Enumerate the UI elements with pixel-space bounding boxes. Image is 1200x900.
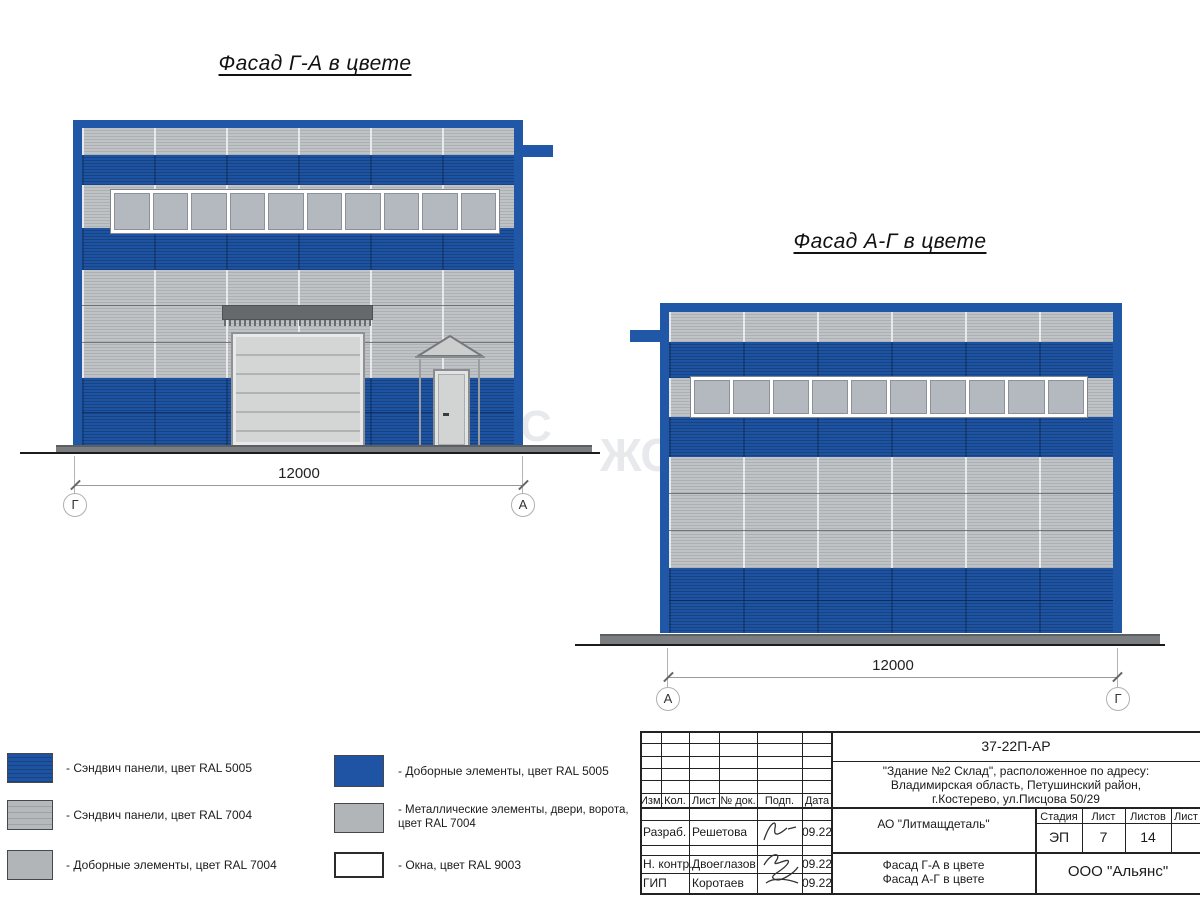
legend-swatch-sandwich-ral5005 bbox=[7, 753, 53, 783]
dimension-value: 12000 bbox=[259, 465, 339, 482]
facade-2-panels bbox=[669, 312, 1113, 633]
panel-joint bbox=[669, 600, 1113, 601]
sectional-gate bbox=[231, 332, 365, 447]
gate-lintel-teeth bbox=[224, 320, 371, 326]
facade-2-ground-line bbox=[575, 644, 1165, 646]
window-pane bbox=[733, 380, 769, 414]
tb-name: Решетова bbox=[692, 825, 756, 839]
window-pane bbox=[422, 193, 458, 230]
axis-marker-a: А bbox=[656, 687, 680, 711]
tb-grid-line bbox=[640, 793, 832, 794]
tb-date: 09.22 bbox=[802, 825, 832, 839]
window-pane bbox=[345, 193, 381, 230]
tb-col-podp: Подп. bbox=[757, 795, 802, 807]
tb-divider bbox=[640, 807, 1200, 809]
tb-role: ГИП bbox=[643, 876, 689, 890]
sheet-title-line: Фасад А-Г в цвете bbox=[832, 872, 1035, 886]
window-pane bbox=[114, 193, 150, 230]
window-pane bbox=[773, 380, 809, 414]
panel-band-blue bbox=[669, 568, 1113, 633]
tb-date: 09.22 bbox=[802, 857, 832, 871]
document-code: 37-22П-АР bbox=[832, 738, 1200, 754]
facade-1-ground-line bbox=[20, 452, 600, 454]
design-company: ООО "Альянс" bbox=[1036, 863, 1200, 880]
window-pane bbox=[694, 380, 730, 414]
window-pane bbox=[268, 193, 304, 230]
dimension-line bbox=[75, 485, 523, 486]
window-pane bbox=[930, 380, 966, 414]
facade-2-building bbox=[660, 303, 1122, 633]
title-block: 37-22П-АР "Здание №2 Склад", расположенн… bbox=[640, 731, 1200, 895]
window-pane bbox=[1048, 380, 1084, 414]
customer-organization: АО "Литмащдеталь" bbox=[832, 817, 1035, 831]
window-pane bbox=[191, 193, 227, 230]
project-address-line: Владимирская область, Петушинский район, bbox=[832, 778, 1200, 792]
tb-col-doc: № док. bbox=[719, 795, 757, 807]
panel-band-blue bbox=[82, 155, 514, 185]
tb-role: Разраб. bbox=[643, 825, 689, 839]
tb-sheet-value: 7 bbox=[1082, 829, 1125, 845]
canopy-post bbox=[478, 359, 480, 447]
dimension-value: 12000 bbox=[853, 657, 933, 674]
tb-border bbox=[640, 893, 1200, 895]
door-leaf bbox=[438, 374, 465, 445]
tb-sheets-label: Листов bbox=[1125, 811, 1171, 823]
project-address-line: г.Костерево, ул.Писцова 50/29 bbox=[832, 792, 1200, 806]
tb-divider bbox=[831, 852, 1200, 854]
legend-swatch-metal-ral7004 bbox=[334, 803, 384, 833]
tb-grid-line bbox=[640, 780, 832, 781]
legend-label: цвет RAL 7004 bbox=[398, 818, 476, 830]
extension-line bbox=[667, 648, 668, 688]
facade-2-title: Фасад А-Г в цвете bbox=[740, 230, 1040, 254]
signature bbox=[758, 849, 804, 893]
panel-joint bbox=[669, 493, 1113, 494]
extension-line bbox=[522, 456, 523, 496]
tb-col-kol: Кол. bbox=[661, 795, 689, 807]
gate-lintel bbox=[222, 305, 373, 320]
drawing-sheet: Фасад Г-А в цвете bbox=[0, 0, 1200, 900]
legend-label: - Металлические элементы, двери, ворота, bbox=[398, 804, 629, 816]
legend-swatch-sandwich-ral7004 bbox=[7, 800, 53, 830]
door-canopy-gable bbox=[415, 333, 485, 359]
tb-grid-line bbox=[831, 761, 1200, 762]
tb-sheet-label: Лист bbox=[1082, 811, 1125, 823]
panel-band-gray bbox=[669, 457, 1113, 568]
tb-next-sheet-label: Лист bbox=[1174, 811, 1200, 823]
axis-marker-g: Г bbox=[63, 493, 87, 517]
dimension-line bbox=[668, 677, 1118, 678]
signature bbox=[760, 816, 802, 844]
tb-grid-line bbox=[1171, 808, 1172, 853]
window-pane bbox=[153, 193, 189, 230]
window-pane bbox=[384, 193, 420, 230]
tb-name: Двоеглазов bbox=[692, 857, 756, 871]
tb-date: 09.22 bbox=[802, 876, 832, 890]
tb-grid-line bbox=[1035, 823, 1200, 824]
door-handle bbox=[443, 413, 449, 416]
window-pane bbox=[969, 380, 1005, 414]
legend-label: - Доборные элементы, цвет RAL 5005 bbox=[398, 764, 609, 778]
legend-swatch-trim-ral7004 bbox=[7, 850, 53, 880]
facade-2-window-strip bbox=[690, 376, 1088, 418]
facade-1-roof-outlet bbox=[523, 145, 553, 157]
axis-marker-g: Г bbox=[1106, 687, 1130, 711]
tb-sheets-value: 14 bbox=[1125, 829, 1171, 845]
tb-stage-value: ЭП bbox=[1036, 829, 1082, 845]
canopy-post bbox=[419, 359, 421, 447]
panel-band-gray bbox=[669, 312, 1113, 342]
tb-border bbox=[640, 731, 1200, 733]
legend-swatch-trim-ral5005 bbox=[334, 755, 384, 787]
facade-2-roof-outlet bbox=[630, 330, 662, 342]
tb-grid-line bbox=[640, 820, 832, 821]
legend-label: - Сэндвич панели, цвет RAL 7004 bbox=[66, 808, 252, 822]
legend-label: - Доборные элементы, цвет RAL 7004 bbox=[66, 858, 277, 872]
watermark: С bbox=[520, 402, 552, 452]
project-address-line: "Здание №2 Склад", расположенное по адре… bbox=[832, 764, 1200, 778]
tb-stage-label: Стадия bbox=[1036, 811, 1082, 823]
window-pane bbox=[812, 380, 848, 414]
window-pane bbox=[851, 380, 887, 414]
facade-1-title: Фасад Г-А в цвете bbox=[165, 52, 465, 76]
legend-swatch-windows-ral9003 bbox=[334, 852, 384, 878]
panel-band-blue bbox=[669, 417, 1113, 457]
panel-band-blue bbox=[82, 228, 514, 270]
legend-label: - Сэндвич панели, цвет RAL 5005 bbox=[66, 761, 252, 775]
gate-sections bbox=[236, 337, 360, 442]
tb-col-izm: Изм. bbox=[640, 795, 661, 807]
axis-marker-a: А bbox=[511, 493, 535, 517]
panel-joint bbox=[669, 530, 1113, 531]
facade-1-window-strip bbox=[110, 189, 500, 234]
sheet-title-line: Фасад Г-А в цвете bbox=[832, 858, 1035, 872]
window-pane bbox=[230, 193, 266, 230]
tb-col-data: Дата bbox=[802, 795, 832, 807]
window-pane bbox=[890, 380, 926, 414]
tb-grid-line bbox=[640, 768, 832, 769]
tb-grid-line bbox=[640, 743, 832, 744]
extension-line bbox=[1117, 648, 1118, 688]
tb-grid-line bbox=[640, 756, 832, 757]
extension-line bbox=[74, 456, 75, 496]
window-pane bbox=[307, 193, 343, 230]
tb-role: Н. контр. bbox=[643, 857, 691, 871]
tb-name: Коротаев bbox=[692, 876, 756, 890]
window-pane bbox=[1008, 380, 1044, 414]
panel-band-blue bbox=[669, 342, 1113, 378]
tb-col-list: Лист bbox=[689, 795, 719, 807]
entrance-door bbox=[433, 369, 470, 447]
legend-label: - Окна, цвет RAL 9003 bbox=[398, 858, 521, 872]
window-pane bbox=[461, 193, 497, 230]
tb-grid-line bbox=[640, 845, 832, 846]
panel-band-gray bbox=[82, 128, 514, 155]
facade-1-building bbox=[73, 120, 523, 447]
